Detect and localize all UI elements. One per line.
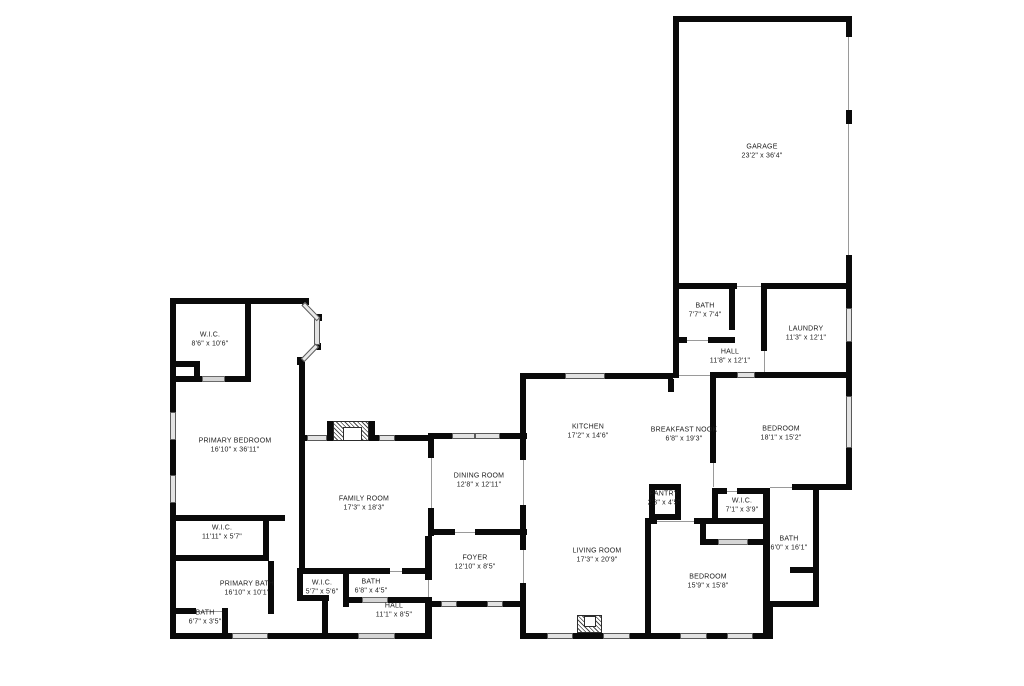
room-name: BATH: [771, 536, 808, 545]
wall: [503, 601, 520, 607]
window-icon: [441, 601, 457, 607]
wall: [790, 567, 813, 573]
wall: [657, 633, 680, 639]
door-opening: [390, 571, 402, 572]
wall: [225, 376, 251, 382]
window-icon: [232, 633, 268, 639]
room-label-bedroom-se: BEDROOM15'9" x 15'8": [688, 574, 729, 591]
wall: [395, 435, 428, 441]
wall: [520, 583, 526, 633]
window-icon: [314, 318, 320, 345]
door-opening: [727, 491, 737, 492]
window-icon: [475, 433, 500, 439]
room-name: BATH: [355, 579, 388, 588]
window-icon: [737, 372, 755, 378]
room-dims: 15'9" x 15'8": [688, 582, 729, 591]
wall: [170, 440, 176, 475]
room-dims: 7'1" x 3'9": [726, 506, 759, 515]
wall: [170, 503, 176, 639]
room-dims: 11'8" x 12'1": [710, 357, 750, 366]
wall: [673, 16, 679, 290]
wall: [170, 298, 307, 304]
wall: [673, 337, 687, 343]
wall: [520, 505, 526, 550]
room-label-bath-sw: BATH6'7" x 3'5": [189, 610, 222, 627]
room-dims: 11'1" x 8'5": [376, 611, 412, 620]
wall: [846, 378, 852, 396]
wall: [349, 597, 362, 603]
room-label-bath-east: BATH6'0" x 16'1": [771, 536, 808, 553]
door-opening: [764, 351, 765, 372]
room-label-primary-bedroom: PRIMARY BEDROOM16'10" x 36'11": [199, 438, 272, 455]
door-icon: [358, 633, 395, 639]
wall: [707, 633, 727, 639]
room-dims: 5'7" x 5'6": [306, 588, 339, 597]
room-label-wic-top-left: W.I.C.8'6" x 10'6": [192, 332, 229, 349]
room-name: GARAGE: [742, 144, 783, 153]
floor-plan: GARAGE23'2" x 36'4"BATH7'7" x 7'4"LAUNDR…: [0, 0, 1024, 686]
wall: [712, 494, 718, 518]
room-dims: 17'3" x 18'3": [339, 504, 389, 513]
wall: [813, 490, 819, 607]
wall: [299, 363, 305, 568]
room-dims: 16'10" x 36'11": [199, 446, 272, 455]
room-dims: 6'8" x 4'5": [355, 587, 388, 596]
room-label-dining-room: DINING ROOM12'8" x 12'11": [454, 473, 504, 490]
room-label-bedroom-ne: BEDROOM18'1" x 15'2": [761, 426, 802, 443]
room-label-wic-small: W.I.C.5'7" x 5'6": [306, 580, 339, 597]
wall: [645, 524, 651, 639]
wall: [500, 433, 527, 439]
room-dims: 12'10" x 8'5": [455, 563, 496, 572]
wall: [428, 529, 455, 535]
room-label-hall-lower: HALL11'1" x 8'5": [376, 603, 412, 620]
door-opening: [848, 124, 849, 255]
door-opening: [679, 375, 710, 376]
window-icon: [680, 633, 707, 639]
room-name: W.I.C.: [192, 332, 229, 341]
wall: [573, 633, 603, 639]
window-icon: [379, 435, 395, 441]
room-name: PRIMARY BEDROOM: [199, 438, 272, 447]
room-dims: 18'1" x 15'2": [761, 434, 802, 443]
bay-window-pane-icon: [301, 302, 320, 321]
room-label-primary-bath: PRIMARY BATH16'10" x 10'1": [220, 581, 274, 598]
room-dims: 11'3" x 12'1": [786, 334, 826, 343]
door-opening: [770, 487, 792, 488]
wall: [428, 439, 434, 458]
window-icon: [846, 396, 852, 448]
window-icon: [603, 633, 630, 639]
room-name: W.I.C.: [202, 525, 242, 534]
wall: [673, 16, 852, 22]
room-name: BEDROOM: [688, 574, 729, 583]
room-name: LIVING ROOM: [573, 548, 622, 557]
door-opening: [687, 340, 708, 341]
window-icon: [727, 633, 753, 639]
room-label-pantry: PANTRY2'3" x 4'5": [648, 491, 681, 508]
wall: [520, 633, 547, 639]
wall: [630, 633, 657, 639]
room-name: HALL: [376, 603, 412, 612]
wall: [708, 337, 735, 343]
room-name: PANTRY: [648, 491, 681, 500]
window-icon: [170, 475, 176, 503]
room-name: LAUNDRY: [786, 326, 826, 335]
room-dims: 12'8" x 12'11": [454, 481, 504, 490]
room-name: BATH: [189, 610, 222, 619]
room-dims: 2'3" x 4'5": [648, 499, 681, 508]
wall: [792, 484, 852, 490]
room-name: DINING ROOM: [454, 473, 504, 482]
wall: [170, 298, 176, 412]
room-dims: 6'0" x 16'1": [771, 544, 808, 553]
room-name: BATH: [689, 303, 722, 312]
room-name: BREAKFAST NOOK: [651, 427, 717, 436]
wall: [170, 633, 232, 639]
room-name: PRIMARY BATH: [220, 581, 274, 590]
wall: [194, 361, 200, 382]
door-opening: [523, 550, 524, 583]
wall: [170, 555, 269, 561]
wall: [761, 283, 852, 289]
door-opening: [713, 463, 714, 487]
wall: [846, 16, 852, 37]
room-name: FOYER: [455, 555, 496, 564]
door-opening: [657, 521, 694, 522]
window-icon: [307, 435, 327, 441]
door-opening: [431, 458, 432, 508]
wall: [402, 568, 432, 574]
wall: [475, 529, 527, 535]
window-icon: [547, 633, 573, 639]
door-opening: [455, 532, 475, 533]
window-icon: [565, 373, 605, 379]
room-name: W.I.C.: [306, 580, 339, 589]
room-dims: 17'3" x 20'9": [573, 556, 622, 565]
room-label-bath-hall: BATH6'8" x 4'5": [355, 579, 388, 596]
wall: [330, 633, 358, 639]
room-label-breakfast-nook: BREAKFAST NOOK6'8" x 19'3": [651, 427, 717, 444]
room-dims: 17'2" x 14'6": [568, 432, 609, 441]
room-label-garage: GARAGE23'2" x 36'4": [742, 144, 783, 161]
room-label-family-room: FAMILY ROOM17'3" x 18'3": [339, 496, 389, 513]
room-label-living-room: LIVING ROOM17'3" x 20'9": [573, 548, 622, 565]
wall: [748, 539, 770, 545]
wall: [673, 283, 679, 378]
room-name: FAMILY ROOM: [339, 496, 389, 505]
door-opening: [523, 460, 524, 505]
room-name: BEDROOM: [761, 426, 802, 435]
door-opening: [848, 37, 849, 110]
room-dims: 8'6" x 10'6": [192, 340, 229, 349]
wall: [755, 372, 852, 378]
room-dims: 16'10" x 10'1": [220, 589, 274, 598]
wall: [673, 283, 737, 289]
room-dims: 6'7" x 3'5": [189, 618, 222, 627]
room-label-laundry: LAUNDRY11'3" x 12'1": [786, 326, 826, 343]
wall: [457, 601, 487, 607]
room-label-foyer: FOYER12'10" x 8'5": [455, 555, 496, 572]
wall: [668, 379, 674, 392]
window-icon: [452, 433, 475, 439]
room-dims: 6'8" x 19'3": [651, 435, 717, 444]
wall: [761, 289, 767, 351]
wall: [700, 518, 770, 524]
door-opening: [737, 286, 761, 287]
window-icon: [846, 308, 852, 342]
room-label-bath-upper: BATH7'7" x 7'4": [689, 303, 722, 320]
door-icon: [718, 539, 748, 545]
wall: [729, 289, 735, 330]
window-icon: [487, 601, 503, 607]
room-name: W.I.C.: [726, 498, 759, 507]
wall: [432, 601, 441, 607]
room-label-kitchen: KITCHEN17'2" x 14'6": [568, 424, 609, 441]
bay-window-pane-icon: [301, 344, 319, 363]
wall: [395, 633, 432, 639]
window-icon: [170, 412, 176, 440]
wall: [700, 539, 718, 545]
room-dims: 11'11" x 5'7": [202, 533, 242, 542]
wall: [268, 633, 330, 639]
wall: [605, 373, 673, 379]
fireplace-inner: [584, 616, 596, 627]
wall: [846, 110, 852, 124]
room-name: KITCHEN: [568, 424, 609, 433]
wall: [520, 373, 565, 379]
wall: [753, 633, 773, 639]
wall: [694, 518, 700, 524]
wall: [710, 378, 716, 463]
room-dims: 23'2" x 36'4": [742, 152, 783, 161]
room-name: HALL: [710, 349, 750, 358]
wall: [322, 601, 328, 633]
wall: [245, 304, 251, 377]
wall: [520, 379, 526, 460]
room-dims: 7'7" x 7'4": [689, 311, 722, 320]
door-icon: [202, 376, 225, 382]
room-label-wic-west: W.I.C.11'11" x 5'7": [202, 525, 242, 542]
room-label-wic-center: W.I.C.7'1" x 3'9": [726, 498, 759, 515]
wall: [846, 290, 852, 308]
room-label-hall-upper: HALL11'8" x 12'1": [710, 349, 750, 366]
fireplace-inner: [343, 427, 362, 441]
